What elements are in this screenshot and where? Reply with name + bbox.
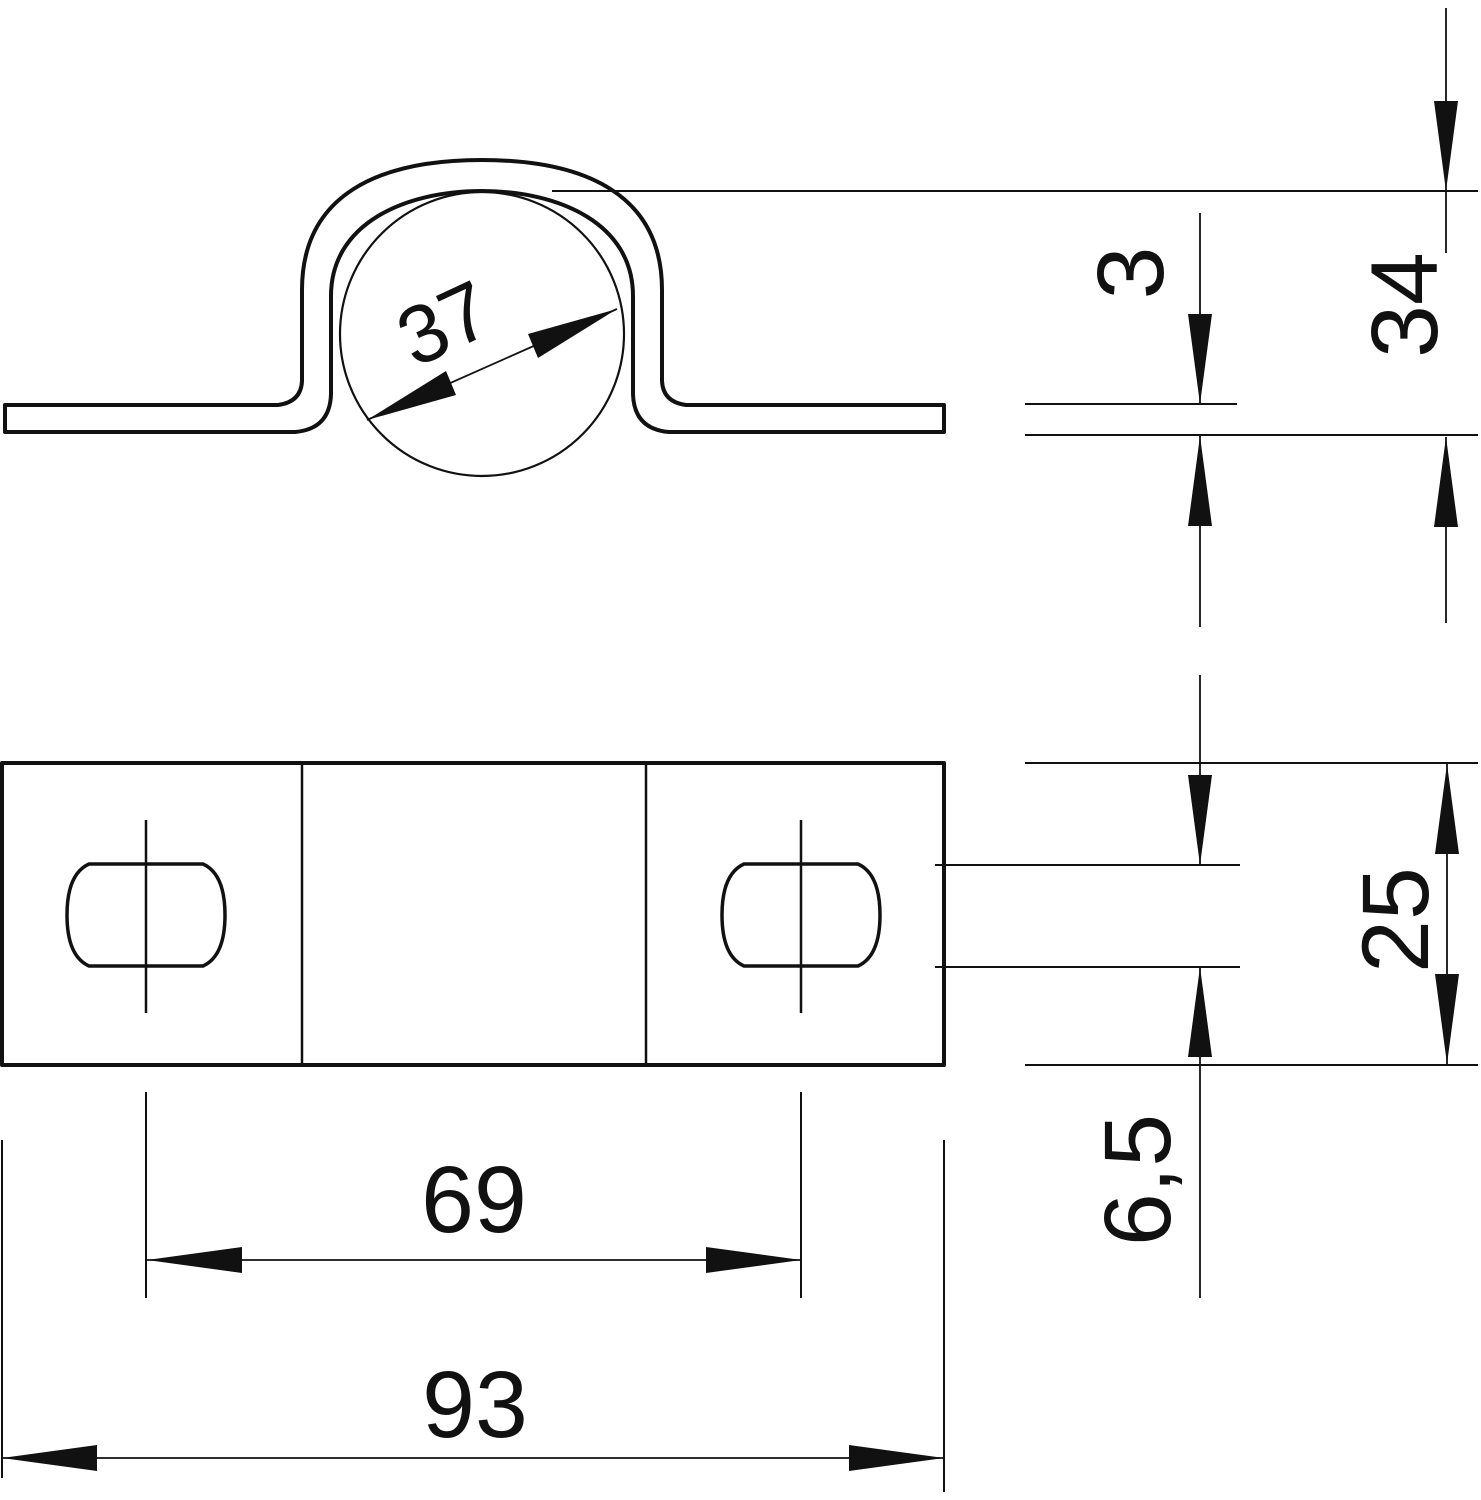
arrowhead-93-right bbox=[849, 1445, 944, 1471]
side-view-dimensions: 3 34 bbox=[552, 8, 1478, 627]
drawing-canvas: 37 3 34 bbox=[0, 0, 1481, 1500]
bottom-dimensions: 69 93 bbox=[2, 1092, 944, 1492]
dimension-strap-width: 25 bbox=[1343, 764, 1459, 1064]
dimension-slot-width: 6,5 bbox=[1085, 675, 1212, 1298]
dim-label-overall-length: 93 bbox=[422, 1352, 528, 1458]
arrowhead-65-up bbox=[1188, 967, 1212, 1057]
arrowhead-93-left bbox=[2, 1445, 97, 1471]
arrowhead-65-down bbox=[1188, 775, 1212, 865]
arrowhead-3-up bbox=[1188, 436, 1212, 526]
arrowhead-25-up bbox=[1435, 764, 1459, 854]
arrowhead-34-up bbox=[1434, 437, 1458, 527]
dimension-overall-height: 34 bbox=[1352, 8, 1458, 623]
technical-drawing: 37 3 34 bbox=[0, 0, 1481, 1500]
arrowhead-37-upper-right bbox=[528, 309, 617, 358]
dimension-overall-length: 93 bbox=[2, 1352, 944, 1471]
dimension-hole-spacing: 69 bbox=[147, 1147, 801, 1273]
arrowhead-3-down bbox=[1188, 314, 1212, 404]
dimension-material-thickness: 3 bbox=[1078, 213, 1212, 627]
dim-label-strap-width: 25 bbox=[1343, 867, 1449, 973]
arrowhead-37-lower-left bbox=[367, 371, 456, 420]
arrowhead-69-left bbox=[147, 1247, 242, 1273]
dim-label-slot-width: 6,5 bbox=[1085, 1114, 1191, 1246]
dimension-pipe-diameter: 37 bbox=[367, 264, 617, 420]
side-view: 37 bbox=[5, 160, 944, 476]
arrowhead-34-down bbox=[1434, 101, 1458, 191]
dim-label-material-thickness: 3 bbox=[1078, 247, 1184, 300]
arrowhead-69-right bbox=[706, 1247, 801, 1273]
plan-view-dimensions: 6,5 25 bbox=[935, 675, 1478, 1298]
arrowhead-25-down bbox=[1435, 974, 1459, 1064]
dim-label-overall-height: 34 bbox=[1352, 252, 1458, 358]
plan-view bbox=[2, 763, 944, 1065]
dim-label-hole-spacing: 69 bbox=[421, 1147, 527, 1253]
